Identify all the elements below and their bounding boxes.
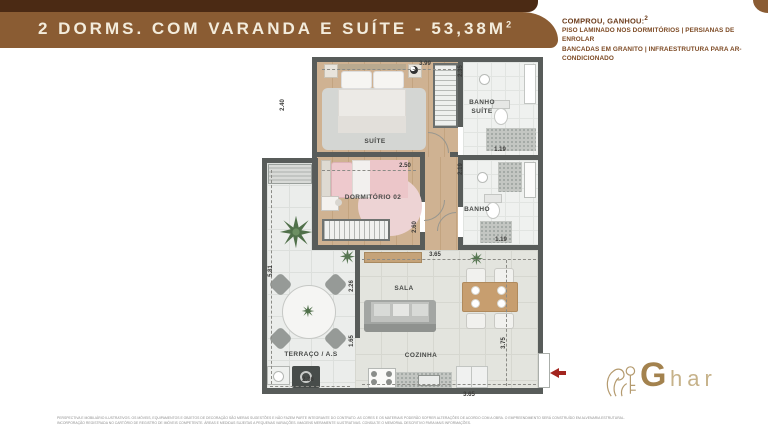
plate-icon bbox=[497, 299, 506, 308]
suite-nightstand bbox=[324, 64, 338, 78]
dim-sala-top: 3.65 bbox=[424, 252, 446, 258]
plant-icon bbox=[278, 214, 314, 250]
wall bbox=[420, 232, 425, 250]
page: 2 DORMS. COM VARANDA E SUÍTE - 53,38M2 C… bbox=[0, 0, 768, 431]
wall bbox=[262, 158, 267, 394]
plate-icon bbox=[497, 286, 506, 295]
brand-emblem-icon bbox=[604, 360, 640, 400]
dim-cozinha-left: 1.65 bbox=[349, 330, 355, 352]
dining-chair bbox=[466, 313, 486, 329]
sala-sofa-cushion bbox=[392, 303, 410, 317]
room-label-cozinha: COZINHA bbox=[396, 352, 446, 361]
entrance-arrow-tail bbox=[558, 371, 566, 375]
dormitorio-bed-pillow bbox=[331, 162, 353, 198]
room-label-terraco: TERRAÇO / A.S bbox=[275, 351, 347, 360]
suite-bed-pillow bbox=[341, 71, 372, 89]
dim-dorm-right: 2.60 bbox=[412, 216, 418, 238]
brand-text-g: G bbox=[640, 358, 666, 392]
wall bbox=[312, 152, 425, 157]
decor-ball-icon bbox=[410, 66, 418, 74]
promo-heading: COMPROU, GANHOU:2 bbox=[562, 15, 766, 26]
dim-sala-left: 2.26 bbox=[349, 275, 355, 297]
stove-burner-icon bbox=[371, 371, 377, 377]
dim-cozinha-right: 3.75 bbox=[501, 332, 507, 354]
header-top-bar bbox=[0, 0, 538, 12]
room-label-dormitorio: DORMITÓRIO 02 bbox=[325, 194, 421, 203]
dim-terraco-bottom: 2.36 bbox=[297, 377, 319, 383]
sala-sofa-cushion bbox=[373, 303, 391, 317]
dim-cozinha-bottom: 3.65 bbox=[458, 392, 480, 398]
promo-block: COMPROU, GANHOU:2 PISO LAMINADO NOS DORM… bbox=[562, 15, 766, 64]
dim-suite-left: 2.40 bbox=[280, 94, 286, 116]
wall bbox=[262, 388, 543, 394]
promo-heading-superscript: 2 bbox=[644, 15, 648, 22]
room-label-sala: SALA bbox=[380, 285, 428, 294]
dining-chair bbox=[494, 313, 514, 329]
room-label-banho: BANHO bbox=[452, 206, 502, 215]
banho-sink bbox=[477, 172, 488, 183]
plate-icon bbox=[471, 299, 480, 308]
dim-banho-bottom: 1.19 bbox=[490, 237, 512, 243]
banho-shower-glass bbox=[524, 162, 536, 198]
suite-bed-fold bbox=[338, 116, 406, 133]
laundry-tank-basin bbox=[273, 371, 284, 382]
dimension-line bbox=[362, 259, 536, 260]
wall bbox=[450, 152, 458, 157]
page-title: 2 DORMS. COM VARANDA E SUÍTE - 53,38M2 bbox=[38, 19, 511, 39]
disclaimer-line-2: INCORPORAÇÃO REGISTRADA NO CARTÓRIO DE R… bbox=[57, 421, 707, 426]
sala-sofa-back bbox=[364, 324, 436, 332]
page-title-superscript: 2 bbox=[506, 19, 511, 29]
banho-suite-vanity bbox=[524, 64, 536, 104]
dormitorio-wardrobe bbox=[322, 219, 390, 241]
dining-table bbox=[462, 282, 518, 312]
suite-wardrobe bbox=[433, 63, 458, 128]
room-label-suite: SUÍTE bbox=[340, 138, 410, 147]
dim-banho-left: 2.19 bbox=[458, 158, 464, 180]
promo-line-1: PISO LAMINADO NOS DORMITÓRIOS | PERSIANA… bbox=[562, 26, 766, 45]
wall bbox=[312, 57, 317, 163]
promo-line-2: BANCADAS EM GRANITO | INFRAESTRUTURA PAR… bbox=[562, 45, 766, 64]
dim-banho-suite-bottom: 1.19 bbox=[489, 147, 511, 153]
dim-terraco-left: 5.81 bbox=[268, 260, 274, 282]
plant-icon bbox=[339, 248, 356, 265]
dimension-line bbox=[362, 384, 536, 385]
stove-burner-icon bbox=[386, 371, 392, 377]
corner-accent bbox=[753, 0, 768, 13]
room-label-banho-suite: BANHO SUÍTE bbox=[464, 99, 500, 116]
dimension-line bbox=[506, 260, 507, 386]
wall bbox=[538, 57, 543, 394]
dim-suite-top: 3.99 bbox=[414, 61, 436, 67]
sala-sofa-cushion bbox=[411, 303, 429, 317]
banho-suite-sink bbox=[479, 74, 490, 85]
sala-sideboard bbox=[364, 252, 422, 263]
header-banner: 2 DORMS. COM VARANDA E SUÍTE - 53,38M2 bbox=[0, 12, 558, 48]
wall bbox=[312, 245, 425, 250]
dim-banho-suite-left: 2.35 bbox=[458, 60, 464, 82]
suite-bed-pillow bbox=[373, 71, 404, 89]
terraco-bench bbox=[268, 164, 312, 184]
dimension-line bbox=[322, 69, 456, 70]
dimension-line bbox=[270, 386, 350, 387]
wall bbox=[458, 155, 543, 160]
entrance-door-recess bbox=[538, 353, 550, 388]
dim-dorm-top: 2.50 bbox=[394, 163, 416, 169]
brand-text-rest: har bbox=[670, 368, 717, 390]
plant-icon bbox=[301, 304, 315, 318]
plate-icon bbox=[471, 286, 480, 295]
banho-counter bbox=[498, 162, 522, 192]
wall bbox=[458, 245, 543, 250]
disclaimer-line-1: PERSPECTIVA E MOBILIÁRIO ILUSTRATIVOS. O… bbox=[57, 416, 707, 421]
wall bbox=[262, 158, 318, 163]
dimension-line bbox=[322, 170, 416, 171]
